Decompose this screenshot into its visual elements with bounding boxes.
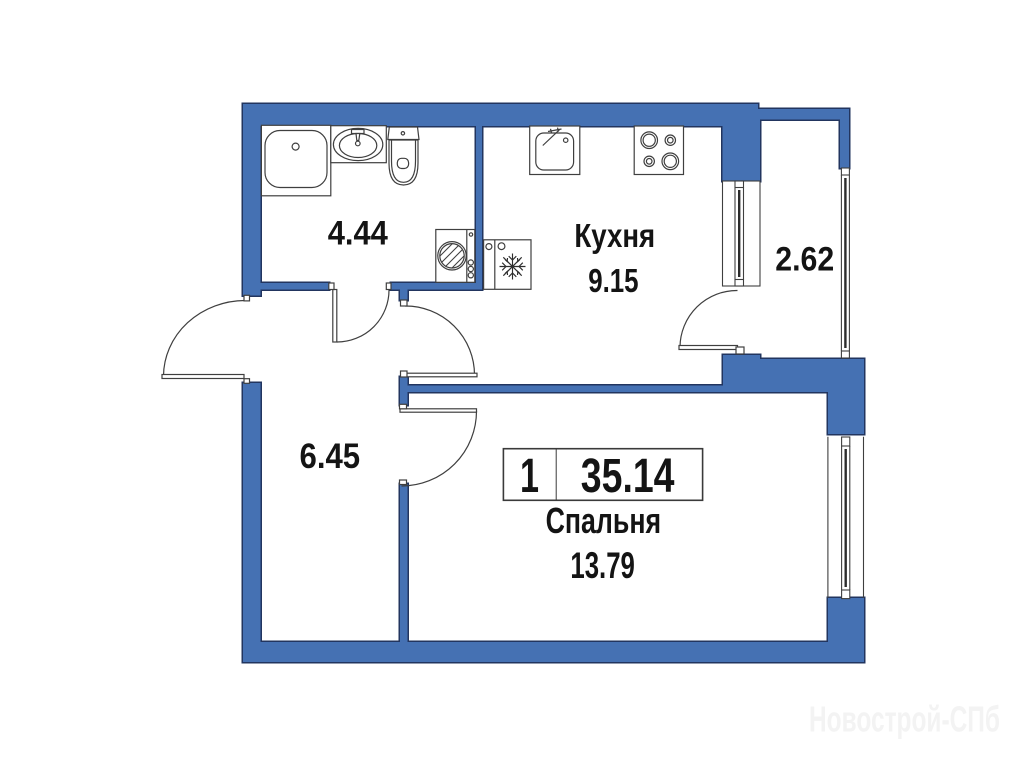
svg-text:Новострой-СПб: Новострой-СПб [809, 699, 1000, 740]
svg-text:4.44: 4.44 [328, 214, 388, 252]
svg-text:1: 1 [520, 450, 539, 503]
svg-text:6.45: 6.45 [300, 437, 361, 476]
svg-text:13.79: 13.79 [570, 544, 635, 586]
svg-text:Кухня: Кухня [574, 217, 655, 254]
svg-text:Спальня: Спальня [546, 500, 662, 541]
svg-text:35.14: 35.14 [581, 450, 675, 503]
svg-text:9.15: 9.15 [588, 262, 638, 299]
svg-text:2.62: 2.62 [775, 241, 834, 279]
